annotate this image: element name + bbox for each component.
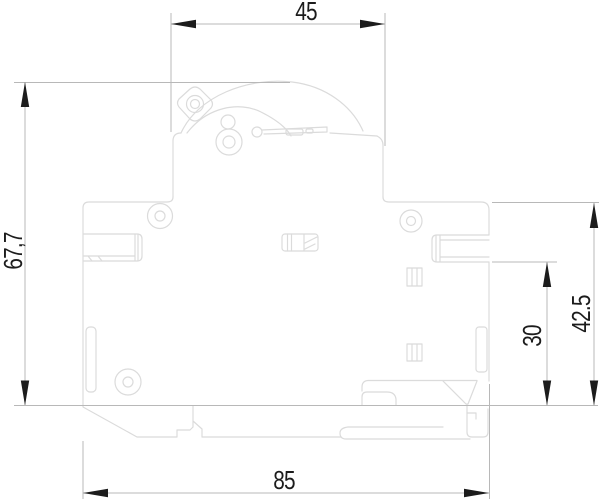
clip-arm-left-diagonal [443, 381, 466, 404]
vent-hole-upper-hatch [412, 268, 417, 286]
upper-section-right-edge [377, 136, 383, 197]
case-left-profile [83, 197, 341, 437]
dim-425-arrow-bottom [590, 381, 598, 406]
toggle-recess-inner-arc [187, 107, 291, 136]
dim-677-arrow-top [21, 82, 29, 107]
left-vent-slot [86, 327, 96, 392]
dim-30-arrow-bottom [543, 381, 551, 406]
rivet-top-left-inner [155, 211, 165, 221]
right-vent-slot [476, 327, 487, 372]
case-right-profile [383, 197, 489, 381]
rail-hook [362, 392, 396, 405]
dim-top-width-label: 45 [295, 0, 317, 26]
dim-30-arrow-top [543, 262, 551, 287]
toggle-mechanism [178, 87, 314, 155]
dim-right-inner-height-label: 30 [518, 325, 547, 347]
pivot-outer-circle [216, 129, 242, 155]
toggle-handle [178, 87, 213, 121]
pivot-inner-circle [223, 136, 235, 148]
terminal-blocks [84, 234, 489, 262]
nameplate-detail [282, 234, 318, 251]
release-slider [340, 427, 470, 439]
dimension-annotations: 45 67,7 30 42.5 [0, 0, 599, 499]
clip-foot-notch [467, 413, 476, 419]
right-terminal-details [436, 235, 489, 262]
dim-85-arrow-left [83, 489, 108, 497]
nameplate-lines [288, 234, 318, 251]
vent-hole-upper [407, 268, 422, 286]
rivet-bottom-left-outer [115, 369, 141, 395]
clip-arm-right-diagonal [468, 381, 477, 404]
toggle-recess-outer-arc [181, 81, 363, 133]
upper-section-left-edge [173, 133, 181, 197]
rivet-bottom-left-inner [123, 377, 133, 387]
dim-left-height-label: 67,7 [0, 232, 28, 269]
link-circle [252, 127, 262, 137]
dim-right-inner-height: 30 [492, 262, 557, 406]
toggle-handle-inner-circle [191, 100, 200, 109]
left-terminal-outline [84, 234, 142, 261]
housing-rivets [115, 204, 422, 396]
dim-425-arrow-top [590, 203, 598, 228]
clip-top-edge [362, 381, 477, 392]
clip-foot [467, 404, 488, 437]
latch-plate-lines [262, 127, 377, 136]
dim-45-arrow-left [171, 20, 196, 28]
dim-677-arrow-bottom [21, 381, 29, 406]
dim-45-arrow-right [360, 20, 385, 28]
dim-85-arrow-right [464, 489, 489, 497]
rivet-top-right-inner [407, 217, 416, 226]
rivet-top-left-outer [148, 204, 173, 229]
latch-pin [306, 129, 313, 133]
vent-hole-lower-hatch [412, 344, 417, 361]
dim-right-height-label: 42.5 [567, 295, 596, 333]
dim-right-height: 42.5 [492, 203, 599, 406]
toggle-handle-outer-circle [187, 96, 204, 113]
breaker-dimension-drawing: 45 67,7 30 42.5 [0, 0, 600, 500]
dim-top-width: 45 [171, 0, 385, 146]
vent-hole-lower [407, 344, 422, 361]
dim-bottom-width: 85 [83, 384, 490, 499]
dim-bottom-width-label: 85 [273, 466, 295, 495]
din-rail-clip [340, 381, 488, 440]
mechanism-small-circle [221, 115, 235, 129]
left-terminal-details [84, 234, 138, 261]
breaker-body [83, 81, 489, 439]
dim-left-height: 67,7 [0, 82, 290, 406]
technical-drawing-canvas: 45 67,7 30 42.5 [0, 0, 600, 500]
rivet-top-right-outer [400, 210, 422, 232]
vent-slots [86, 268, 487, 392]
